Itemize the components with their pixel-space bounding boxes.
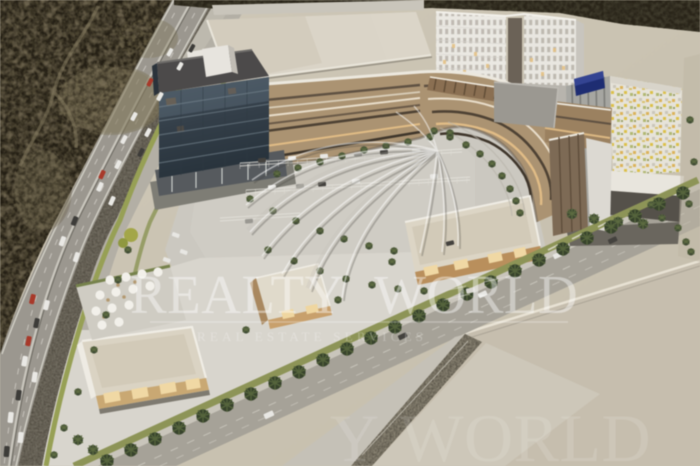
svg-text:Y WORLD: Y WORLD (330, 400, 651, 466)
svg-text:REAL ESTATE SERVICES: REAL ESTATE SERVICES (197, 329, 427, 344)
svg-text:REALTY WORLD: REALTY WORLD (130, 264, 578, 325)
